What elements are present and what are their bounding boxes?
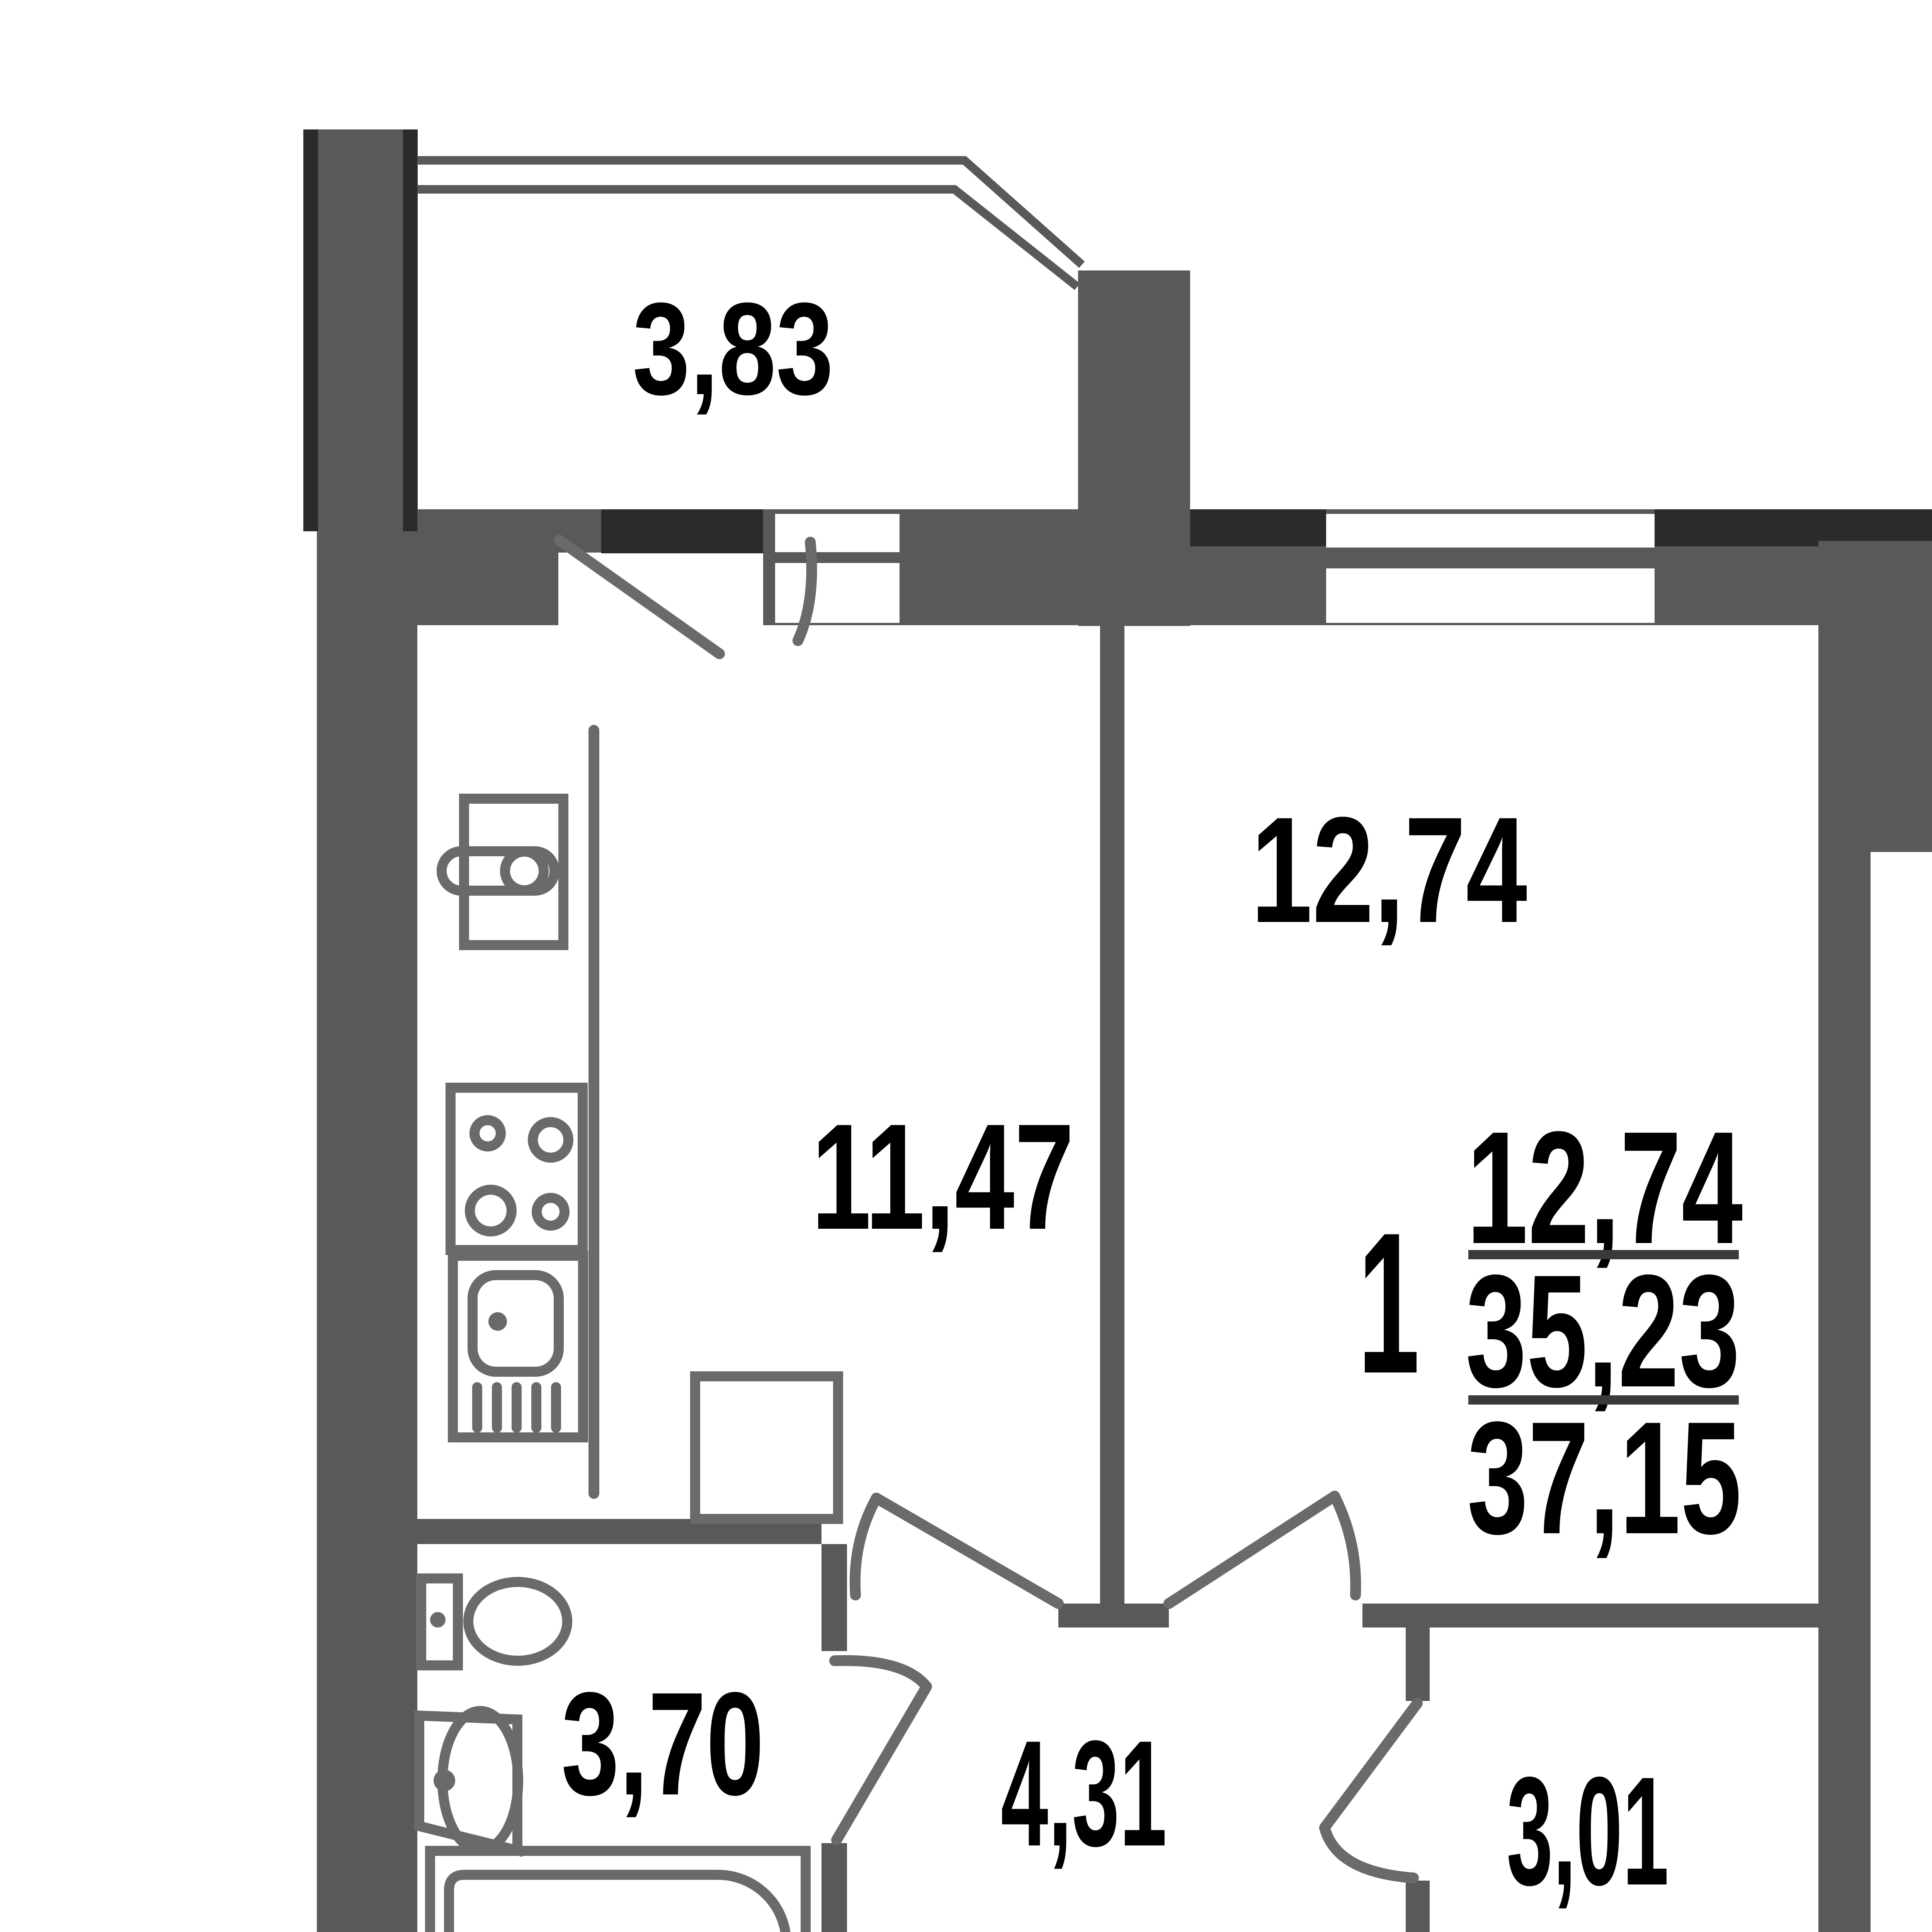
- floorplan-svg: 3,83 11,47 12,74 3,70 4,31 3,01 1 12,74 …: [0, 0, 1932, 1932]
- living-door-swing-icon: [1335, 1496, 1356, 1595]
- right-wall-upper: [1818, 541, 1932, 852]
- bathroom-right-wall-lower: [821, 1843, 847, 1932]
- kitchen-area-label: 11,47: [811, 1092, 1074, 1261]
- storage-door-leaf: [1325, 1703, 1417, 1828]
- left-wall: [317, 531, 417, 1932]
- washbasin-icon: [419, 1711, 518, 1850]
- balcony-left-wall: [317, 129, 404, 531]
- storage-area-label: 3,01: [1507, 1745, 1669, 1917]
- area-summary: 1 12,74 35,23 37,15: [1358, 1098, 1743, 1567]
- living-area-label: 12,74: [1251, 786, 1528, 954]
- kitchen-door-swing-icon: [855, 1498, 876, 1595]
- living-door-leaf: [1169, 1496, 1335, 1604]
- kitchen-living-partition: [1100, 625, 1124, 1604]
- rooms-count-label: 1: [1358, 1191, 1420, 1415]
- stove-icon: [451, 1088, 583, 1250]
- bathroom-right-wall-upper: [821, 1544, 847, 1651]
- storage-left-wall-upper: [1406, 1628, 1430, 1701]
- balcony-door-threshold: [601, 509, 763, 553]
- top-wall-dark-left: [1190, 509, 1326, 546]
- bathroom-area-label: 3,70: [561, 1662, 764, 1826]
- balcony-left-wall-inner-edge: [403, 129, 418, 531]
- kitchen-door-leaf: [876, 1498, 1058, 1604]
- bathroom-door-leaf: [837, 1687, 927, 1840]
- kitchen-window-opening: [775, 514, 900, 623]
- hallway-area-label: 4,31: [1001, 1709, 1167, 1878]
- storage-door-swing-icon: [1325, 1828, 1413, 1878]
- kitchen-window-frame: [775, 552, 900, 563]
- bathtub-icon: [430, 1851, 806, 1932]
- kitchen-fixtures: [442, 730, 838, 1519]
- balcony-railing: [417, 160, 1082, 287]
- top-wall-dark-right: [1655, 509, 1932, 546]
- hallway-door-stub: [1058, 1604, 1169, 1628]
- bathroom-door-swing-icon: [835, 1661, 927, 1687]
- living-window-frame: [1326, 548, 1655, 568]
- floorplan-canvas: 3,83 11,47 12,74 3,70 4,31 3,01 1 12,74 …: [0, 0, 1932, 1932]
- total-area-value: 37,15: [1467, 1388, 1742, 1567]
- walls: [303, 129, 1932, 1932]
- balcony-left-wall-outer-edge: [303, 129, 318, 531]
- toilet-icon: [421, 1578, 567, 1665]
- storage-left-wall-lower: [1406, 1881, 1430, 1932]
- right-wall-lower: [1818, 851, 1871, 1932]
- sink-drainer-icon: [453, 1256, 583, 1437]
- living-bottom-wall: [1362, 1604, 1818, 1628]
- balcony-area-label: 3,83: [633, 276, 833, 422]
- cabinet-icon: [695, 1376, 838, 1519]
- kitchen-sink-icon: [442, 799, 563, 945]
- balcony-railing-inner-line: [417, 189, 1077, 287]
- balcony-living-column: [1078, 270, 1190, 626]
